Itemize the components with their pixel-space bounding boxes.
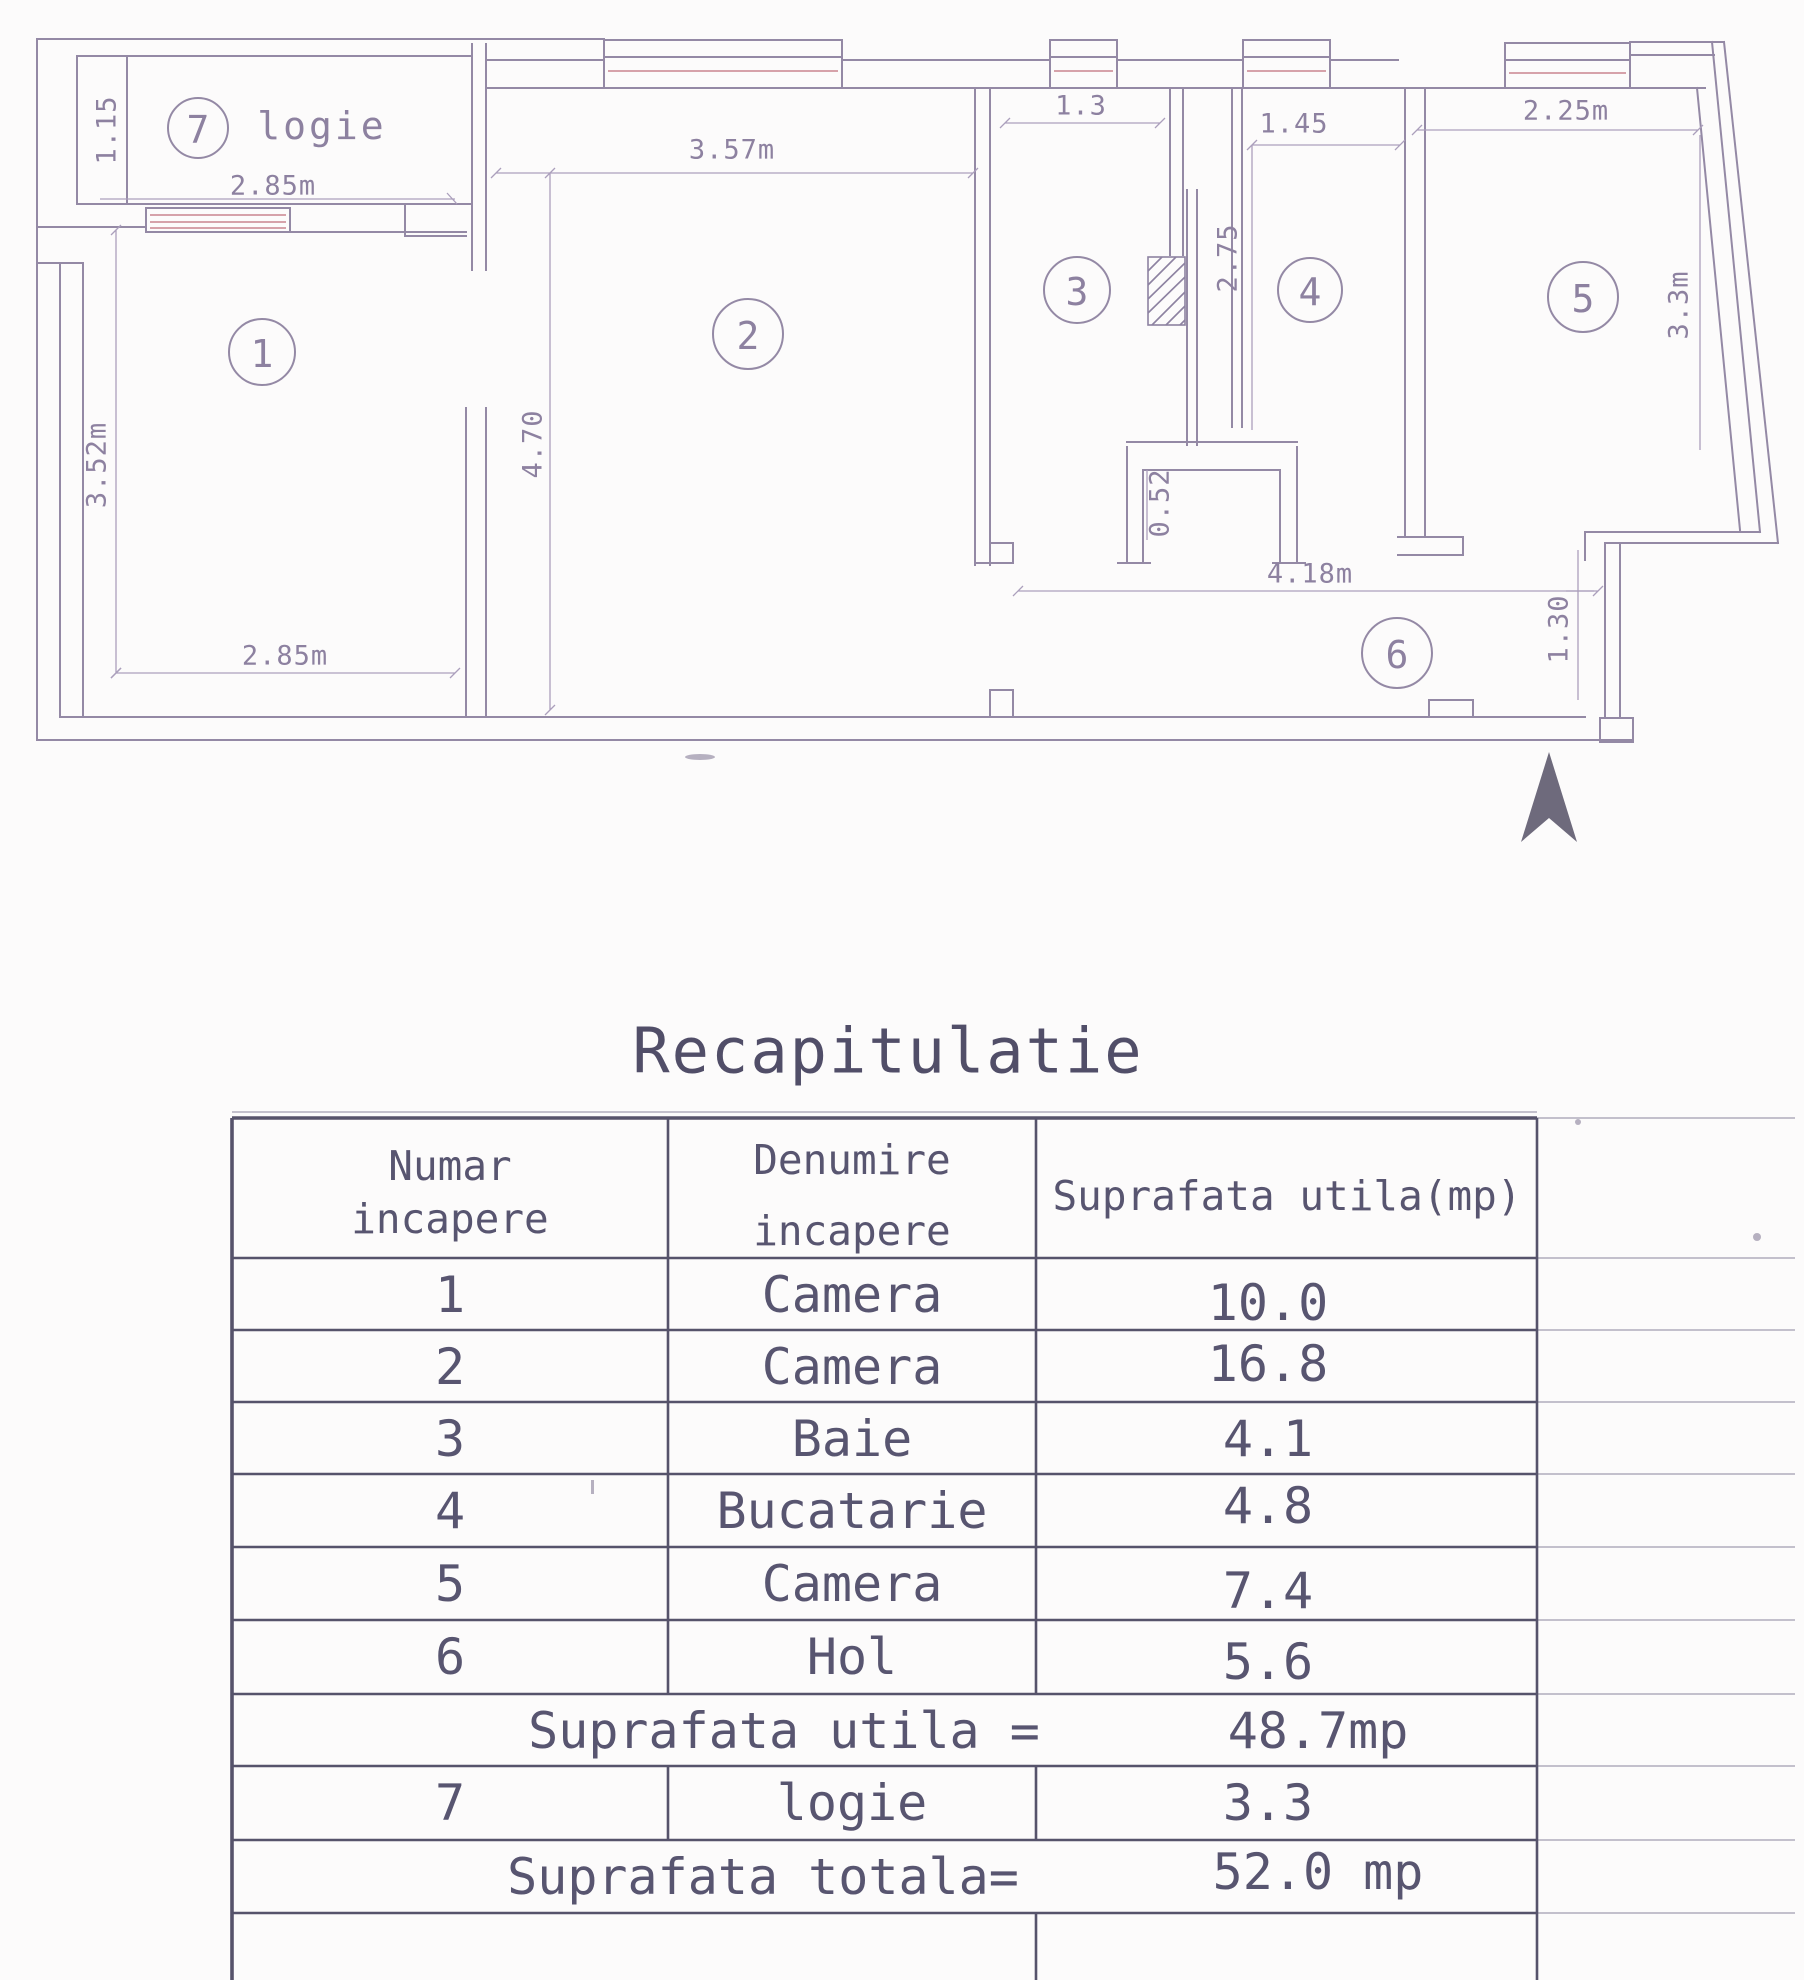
row5-name: Camera — [762, 1555, 943, 1613]
dim-hall-width: 4.18m — [1267, 559, 1353, 590]
dimension-lines — [100, 118, 1703, 715]
loggia-label: logie — [257, 104, 386, 148]
table-row: 2 Camera 16.8 — [435, 1335, 1328, 1396]
row3-name: Baie — [792, 1410, 912, 1468]
window-room2 — [604, 40, 842, 88]
row2-name: Camera — [762, 1338, 943, 1396]
total-row: Suprafata totala= 52.0 mp — [507, 1843, 1423, 1906]
shaft-hatch — [1148, 257, 1185, 325]
room-number-1: 1 — [251, 332, 274, 376]
row6-area: 5.6 — [1223, 1633, 1313, 1691]
dim-room5-width: 2.25m — [1523, 96, 1609, 127]
room-number-5: 5 — [1572, 277, 1595, 321]
dim-room5-height: 3.3m — [1664, 270, 1695, 339]
row6-no: 6 — [435, 1628, 465, 1686]
table-row: 1 Camera 10.0 — [435, 1266, 1328, 1332]
table-row: 5 Camera 7.4 — [435, 1555, 1313, 1620]
dim-entry-offset: 1.30 — [1544, 594, 1575, 663]
room-marker-4: 4 — [1278, 258, 1342, 322]
total-value: 52.0 mp — [1213, 1843, 1424, 1901]
room-circles: 7 1 2 3 4 5 6 — [168, 98, 1618, 688]
total-label: Suprafata totala= — [507, 1848, 1019, 1906]
document-canvas: 7 1 2 3 4 5 6 — [0, 0, 1804, 1980]
window-room3 — [1050, 40, 1117, 88]
row7-no: 7 — [435, 1774, 465, 1832]
row2-no: 2 — [435, 1338, 465, 1396]
room-marker-5: 5 — [1548, 262, 1618, 332]
row3-area: 4.1 — [1223, 1410, 1313, 1468]
dim-room2-height: 4.70 — [518, 409, 549, 478]
row6-name: Hol — [807, 1628, 897, 1686]
dim-room1-width: 2.85m — [242, 641, 328, 672]
room-number-7: 7 — [187, 108, 210, 152]
plan-labels: logie 2.85m 1.15 3.52m 2.85m 3.57m 4.70 … — [82, 91, 1695, 672]
table-header: Numar incapere Denumire incapere Suprafa… — [351, 1136, 1521, 1255]
dim-loggia-depth: 1.15 — [92, 95, 123, 164]
dim-loggia-width: 2.85m — [230, 171, 316, 202]
room-marker-2: 2 — [713, 299, 783, 369]
scanned-floorplan-document: 7 1 2 3 4 5 6 — [0, 0, 1804, 1980]
table-row: 4 Bucatarie 4.8 — [435, 1477, 1313, 1540]
row4-area: 4.8 — [1223, 1477, 1313, 1535]
row1-area: 10.0 — [1208, 1274, 1328, 1332]
dim-room4-width: 1.45 — [1259, 109, 1328, 140]
header-col1-line2: incapere — [351, 1195, 548, 1243]
row3-no: 3 — [435, 1410, 465, 1468]
window-room4 — [1243, 40, 1330, 88]
row2-area: 16.8 — [1208, 1335, 1328, 1393]
table-row: 3 Baie 4.1 — [435, 1410, 1313, 1468]
header-col2-line2: incapere — [753, 1207, 950, 1255]
table-title: Recapitulatie — [632, 1015, 1143, 1088]
walls-loggia — [77, 44, 486, 270]
subtotal-label: Suprafata utila = — [528, 1702, 1040, 1760]
subtotal-row: Suprafata utila = 48.7mp — [528, 1702, 1408, 1760]
dim-room1-height: 3.52m — [82, 422, 113, 508]
dim-room2-width: 3.57m — [689, 135, 775, 166]
window-room5 — [1505, 43, 1630, 88]
row1-no: 1 — [435, 1266, 465, 1324]
room-number-3: 3 — [1066, 270, 1089, 314]
subtotal-value: 48.7mp — [1228, 1702, 1409, 1760]
row4-name: Bucatarie — [717, 1482, 988, 1540]
row7-name: logie — [777, 1774, 928, 1832]
room-marker-1: 1 — [229, 319, 295, 385]
room-number-2: 2 — [737, 314, 760, 358]
header-col1-line1: Numar — [388, 1142, 511, 1190]
recap-table: Recapitulatie Numar incapere Denumire in… — [232, 1015, 1795, 1980]
table-row: 6 Hol 5.6 — [435, 1628, 1313, 1691]
row1-name: Camera — [762, 1266, 943, 1324]
header-col2-line1: Denumire — [753, 1136, 950, 1184]
row7-area: 3.3 — [1223, 1774, 1313, 1832]
dim-room4-height: 2.75 — [1213, 223, 1244, 292]
dim-room3-width: 1.3 — [1055, 91, 1107, 122]
room-marker-6: 6 — [1362, 618, 1432, 688]
row4-no: 4 — [435, 1482, 465, 1540]
room-number-4: 4 — [1299, 270, 1322, 314]
row5-no: 5 — [435, 1555, 465, 1613]
north-arrow-icon — [1521, 752, 1577, 842]
table-rows: 1 Camera 10.0 2 Camera 16.8 3 Baie 4.1 4… — [435, 1266, 1423, 1906]
row5-area: 7.4 — [1223, 1562, 1313, 1620]
header-col3: Suprafata utila(mp) — [1053, 1172, 1522, 1220]
dim-niche-depth: 0.52 — [1145, 468, 1176, 537]
room-marker-7: 7 — [168, 98, 228, 158]
window-room1 — [146, 208, 290, 232]
room-marker-3: 3 — [1044, 257, 1110, 323]
walls-interior — [466, 42, 1778, 742]
table-row: 7 logie 3.3 — [435, 1774, 1313, 1832]
room-number-6: 6 — [1386, 633, 1409, 677]
